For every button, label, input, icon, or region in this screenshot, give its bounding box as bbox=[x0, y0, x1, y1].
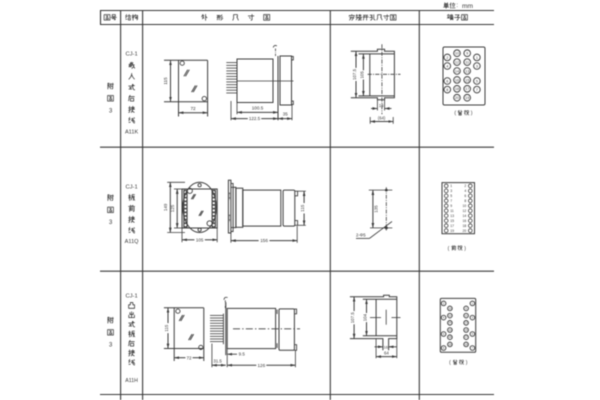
svg-text:7: 7 bbox=[476, 88, 478, 92]
svg-text:7: 7 bbox=[450, 199, 452, 203]
svg-text:1: 1 bbox=[472, 302, 474, 305]
svg-text:105: 105 bbox=[359, 71, 364, 79]
svg-text:3: 3 bbox=[472, 317, 474, 320]
svg-text:19: 19 bbox=[465, 96, 469, 100]
svg-text:115: 115 bbox=[300, 204, 305, 212]
svg-text:A11K: A11K bbox=[125, 130, 139, 136]
svg-text:4: 4 bbox=[446, 64, 448, 68]
svg-text:): ) bbox=[464, 246, 466, 252]
svg-text:16: 16 bbox=[463, 219, 467, 223]
svg-text:CJ-1: CJ-1 bbox=[125, 52, 137, 58]
svg-text:): ) bbox=[466, 360, 468, 366]
svg-text:105: 105 bbox=[196, 237, 204, 242]
svg-text:16: 16 bbox=[384, 345, 388, 349]
svg-text:6: 6 bbox=[443, 333, 445, 336]
svg-text:A11H: A11H bbox=[125, 378, 138, 384]
svg-text:156: 156 bbox=[260, 238, 268, 243]
svg-text:64: 64 bbox=[384, 351, 389, 356]
svg-text:4: 4 bbox=[443, 317, 445, 320]
svg-text::: : bbox=[456, 3, 458, 9]
svg-text:CJ-1: CJ-1 bbox=[125, 185, 137, 191]
svg-text:3: 3 bbox=[109, 342, 113, 349]
svg-text:16: 16 bbox=[455, 78, 459, 82]
svg-text:18: 18 bbox=[455, 87, 459, 91]
svg-text:2-Φ5: 2-Φ5 bbox=[356, 233, 366, 238]
svg-text:19: 19 bbox=[450, 229, 454, 233]
svg-text:16: 16 bbox=[379, 103, 384, 108]
svg-text:3: 3 bbox=[109, 219, 113, 226]
svg-text:8: 8 bbox=[464, 199, 466, 203]
svg-text:8: 8 bbox=[446, 88, 448, 92]
svg-text:2: 2 bbox=[446, 56, 448, 60]
svg-text:A11Q: A11Q bbox=[125, 239, 140, 245]
svg-text:72: 72 bbox=[186, 355, 192, 360]
svg-text:9: 9 bbox=[450, 204, 452, 208]
svg-text:13: 13 bbox=[450, 214, 454, 218]
svg-text:125: 125 bbox=[170, 204, 175, 212]
svg-text:4: 4 bbox=[464, 189, 466, 193]
svg-text:10: 10 bbox=[463, 204, 467, 208]
svg-text:): ) bbox=[471, 111, 473, 117]
svg-text:17: 17 bbox=[450, 224, 454, 228]
svg-text:107.5: 107.5 bbox=[350, 312, 355, 324]
svg-text:15: 15 bbox=[465, 78, 469, 82]
svg-text:14: 14 bbox=[463, 214, 467, 218]
svg-text:107.5: 107.5 bbox=[352, 68, 357, 80]
svg-text:20: 20 bbox=[455, 96, 459, 100]
svg-text:115: 115 bbox=[163, 77, 168, 85]
svg-text:2: 2 bbox=[464, 184, 466, 188]
svg-text:11: 11 bbox=[465, 60, 469, 64]
svg-text:1: 1 bbox=[450, 184, 452, 188]
svg-text:17: 17 bbox=[465, 87, 469, 91]
svg-text:100.5: 100.5 bbox=[252, 106, 264, 111]
svg-text:6: 6 bbox=[446, 79, 448, 83]
svg-text:20: 20 bbox=[463, 229, 467, 233]
svg-text:12: 12 bbox=[455, 60, 459, 64]
svg-text:(: ( bbox=[448, 246, 450, 252]
svg-text:7: 7 bbox=[472, 347, 474, 350]
svg-text:2: 2 bbox=[443, 302, 445, 305]
svg-text:149: 149 bbox=[163, 203, 168, 211]
svg-text:122.5: 122.5 bbox=[249, 116, 261, 121]
svg-text:18: 18 bbox=[463, 224, 467, 228]
svg-text:5: 5 bbox=[476, 79, 478, 83]
svg-text:3: 3 bbox=[109, 107, 113, 114]
svg-text:126: 126 bbox=[257, 363, 265, 368]
svg-text:9.5: 9.5 bbox=[239, 352, 246, 357]
svg-text:(64): (64) bbox=[378, 115, 386, 120]
svg-text:15: 15 bbox=[450, 219, 454, 223]
svg-text:6: 6 bbox=[464, 194, 466, 198]
svg-text:5: 5 bbox=[450, 194, 452, 198]
svg-text:11: 11 bbox=[450, 209, 454, 213]
svg-text:(: ( bbox=[454, 111, 456, 117]
svg-text:9: 9 bbox=[466, 52, 468, 56]
svg-text:31.5: 31.5 bbox=[213, 359, 222, 364]
svg-text:8: 8 bbox=[443, 347, 445, 350]
svg-text:104: 104 bbox=[363, 313, 368, 321]
svg-text:mm: mm bbox=[462, 3, 473, 10]
svg-text:CJ-1: CJ-1 bbox=[125, 294, 137, 300]
svg-text:12: 12 bbox=[463, 209, 467, 213]
svg-text:9: 9 bbox=[465, 307, 467, 310]
svg-text:3: 3 bbox=[476, 64, 478, 68]
svg-text:72: 72 bbox=[190, 106, 196, 111]
svg-text:(: ( bbox=[449, 360, 451, 366]
svg-text:13: 13 bbox=[465, 69, 469, 73]
svg-text:1: 1 bbox=[476, 56, 478, 60]
svg-text:5: 5 bbox=[472, 333, 474, 336]
svg-text:14: 14 bbox=[455, 69, 459, 73]
svg-text:35: 35 bbox=[283, 111, 289, 116]
svg-text:115: 115 bbox=[164, 324, 169, 332]
svg-text:135: 135 bbox=[373, 205, 378, 213]
svg-text:3: 3 bbox=[450, 189, 452, 193]
svg-text:10: 10 bbox=[455, 52, 459, 56]
